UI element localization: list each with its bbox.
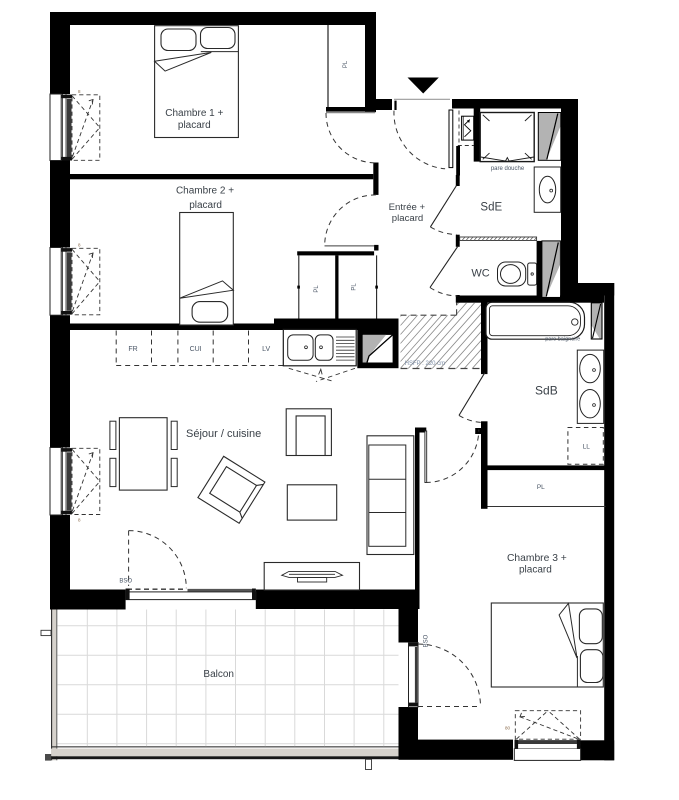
- svg-text:pare douche: pare douche: [491, 166, 525, 172]
- svg-text:Séjour / cuisine: Séjour / cuisine: [186, 428, 261, 440]
- svg-text:placard: placard: [392, 213, 423, 224]
- svg-text:HSFP : 220 cm: HSFP : 220 cm: [405, 361, 446, 367]
- svg-text:PL: PL: [314, 285, 320, 293]
- svg-text:Balcon: Balcon: [203, 669, 234, 680]
- svg-text:PL: PL: [343, 60, 349, 68]
- svg-text:BSO: BSO: [119, 578, 132, 584]
- svg-text:PL: PL: [537, 484, 545, 491]
- svg-text:80: 80: [505, 726, 511, 731]
- svg-text:BSO: BSO: [424, 634, 430, 647]
- svg-text:CUI: CUI: [190, 346, 202, 353]
- svg-text:placard: placard: [189, 200, 222, 211]
- svg-text:SdE: SdE: [480, 201, 502, 213]
- svg-text:LV: LV: [262, 346, 270, 353]
- svg-text:SdB: SdB: [535, 384, 558, 398]
- svg-text:placard: placard: [519, 565, 552, 576]
- svg-text:Chambre 1 +: Chambre 1 +: [165, 108, 223, 119]
- svg-text:LL: LL: [583, 444, 591, 451]
- svg-text:FR: FR: [128, 346, 137, 353]
- svg-text:pare baignoire: pare baignoire: [545, 337, 580, 343]
- svg-text:WC: WC: [471, 268, 489, 280]
- svg-text:Chambre 3 +: Chambre 3 +: [507, 553, 567, 564]
- svg-text:Chambre 2 +: Chambre 2 +: [176, 186, 234, 197]
- svg-text:Entrée +: Entrée +: [389, 202, 426, 213]
- svg-text:placard: placard: [178, 120, 211, 131]
- svg-text:PL: PL: [352, 283, 358, 291]
